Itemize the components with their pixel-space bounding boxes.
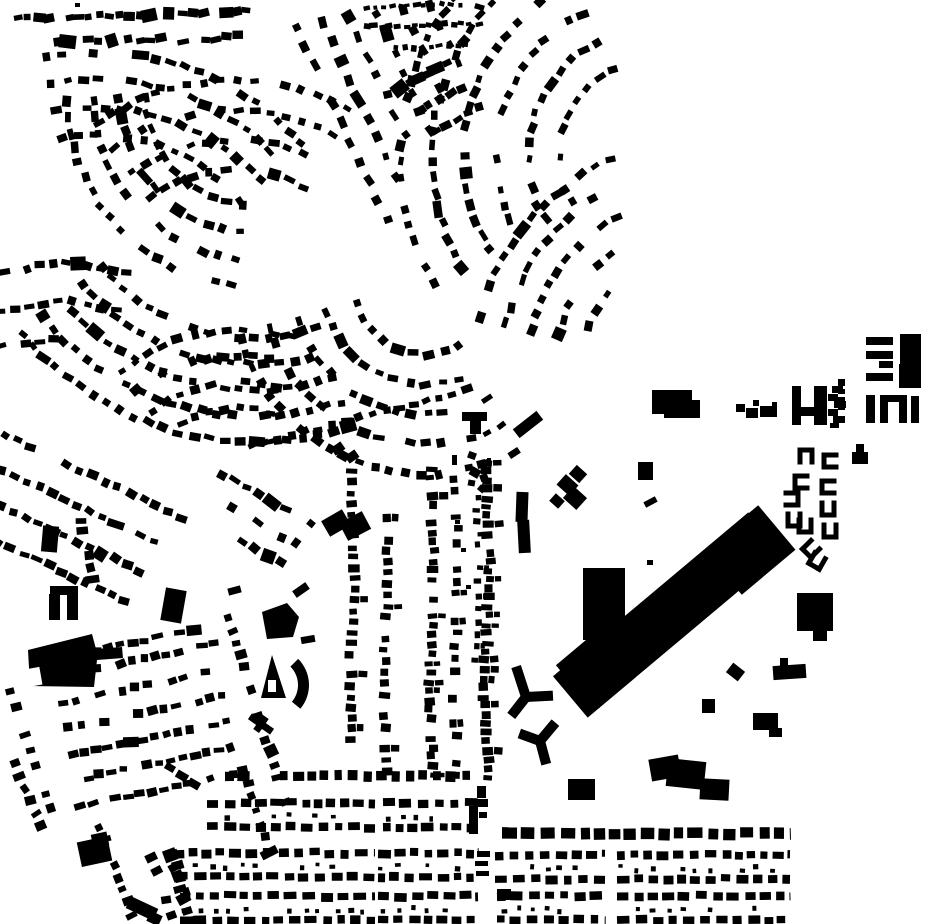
map-canvas xyxy=(0,0,930,924)
map-background xyxy=(0,0,930,924)
figure-ground-map xyxy=(0,0,930,924)
